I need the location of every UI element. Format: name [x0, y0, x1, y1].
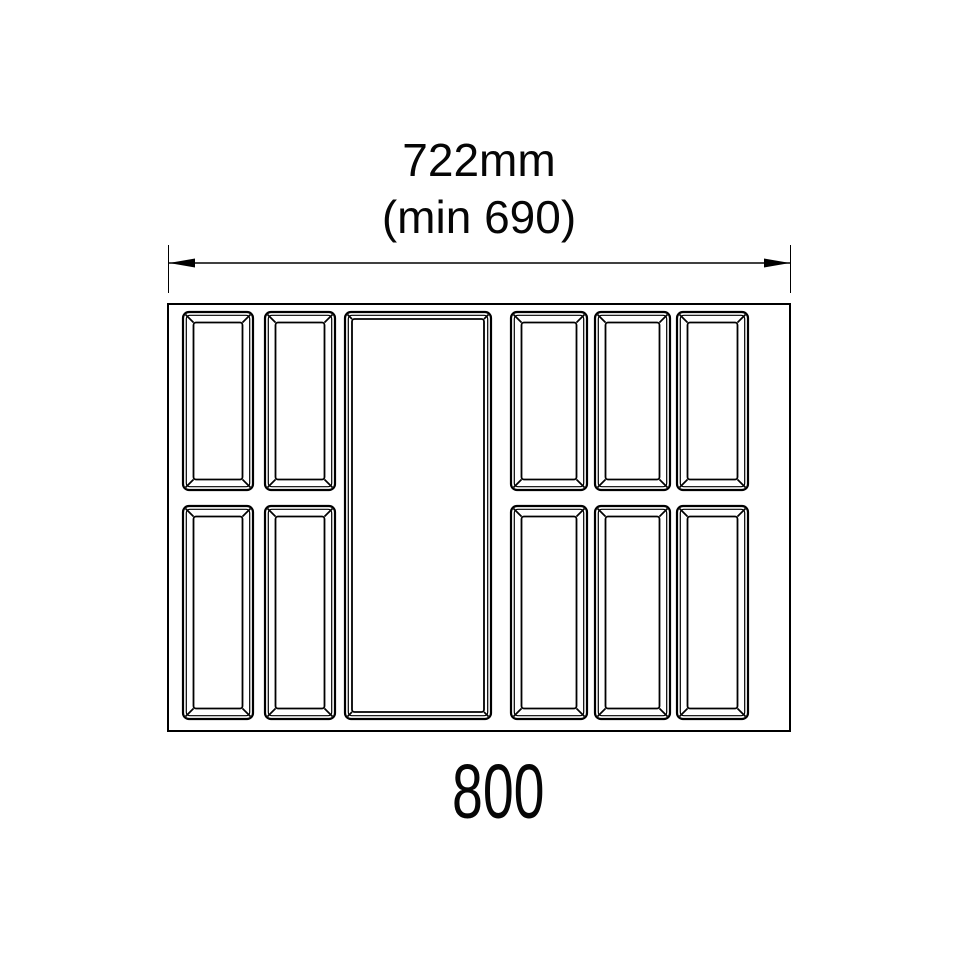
- drawing-canvas: 722mm (min 690) 800: [0, 0, 960, 960]
- compartment-bottom-left-2: [265, 506, 335, 719]
- compartment-bottom-right-2: [595, 506, 670, 719]
- drawer-width-text: 800: [452, 752, 545, 832]
- compartment-top-right-1: [511, 312, 587, 490]
- compartment-bottom-right-3: [677, 506, 748, 719]
- compartment-top-left-2: [265, 312, 335, 490]
- dimension-arrow: [169, 245, 791, 293]
- compartment-top-right-2: [595, 312, 670, 490]
- drawer-width-label: 800: [187, 752, 809, 832]
- arrowhead-left: [169, 259, 195, 268]
- compartment-top-left-1: [183, 312, 253, 490]
- compartment-bottom-right-1: [511, 506, 587, 719]
- compartment-center-large: [345, 312, 491, 719]
- compartment-top-right-3: [677, 312, 748, 490]
- tray-outline: [168, 304, 790, 731]
- arrowhead-right: [764, 259, 790, 268]
- compartment-bottom-left-1: [183, 506, 253, 719]
